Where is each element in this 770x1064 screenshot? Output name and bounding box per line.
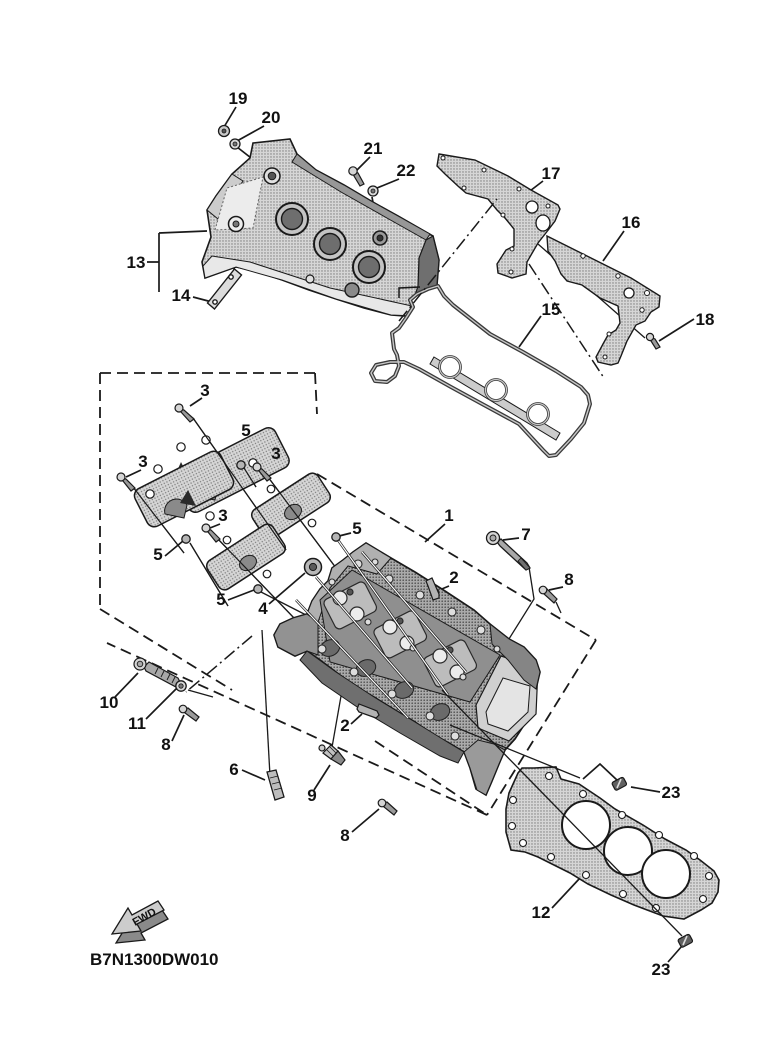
- svg-text:10: 10: [100, 693, 119, 712]
- svg-text:7: 7: [521, 525, 530, 544]
- svg-text:5: 5: [241, 421, 250, 440]
- svg-text:3: 3: [271, 444, 280, 463]
- svg-text:15: 15: [542, 300, 561, 319]
- svg-text:3: 3: [200, 381, 209, 400]
- svg-text:13: 13: [127, 253, 146, 272]
- svg-text:5: 5: [216, 590, 225, 609]
- svg-text:6: 6: [229, 760, 238, 779]
- svg-text:18: 18: [696, 310, 715, 329]
- svg-text:9: 9: [307, 786, 316, 805]
- svg-text:5: 5: [153, 545, 162, 564]
- svg-text:23: 23: [652, 960, 671, 979]
- svg-text:5: 5: [352, 519, 361, 538]
- svg-text:21: 21: [364, 139, 383, 158]
- svg-text:20: 20: [262, 108, 281, 127]
- svg-text:2: 2: [449, 568, 458, 587]
- svg-text:B7N1300DW010: B7N1300DW010: [90, 950, 219, 969]
- svg-text:4: 4: [258, 599, 268, 618]
- svg-text:1: 1: [444, 506, 453, 525]
- svg-text:3: 3: [218, 506, 227, 525]
- svg-text:8: 8: [564, 570, 573, 589]
- svg-text:8: 8: [340, 826, 349, 845]
- svg-text:8: 8: [161, 735, 170, 754]
- svg-text:14: 14: [172, 286, 191, 305]
- svg-text:16: 16: [622, 213, 641, 232]
- svg-text:17: 17: [542, 164, 561, 183]
- svg-text:23: 23: [662, 783, 681, 802]
- svg-text:3: 3: [138, 452, 147, 471]
- svg-text:22: 22: [397, 161, 416, 180]
- svg-text:11: 11: [128, 714, 146, 733]
- svg-text:12: 12: [532, 903, 551, 922]
- svg-text:19: 19: [229, 89, 248, 108]
- svg-text:2: 2: [340, 716, 349, 735]
